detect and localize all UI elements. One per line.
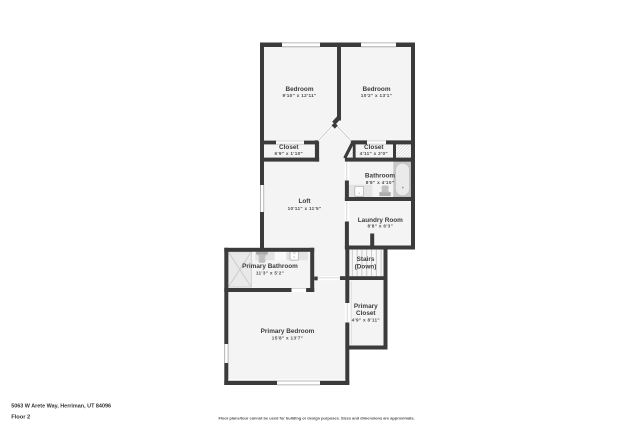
svg-text:Bathroom: Bathroom (365, 173, 395, 180)
svg-text:15'8" x 13'7": 15'8" x 13'7" (272, 335, 303, 340)
svg-text:10'11" x 11'5": 10'11" x 11'5" (288, 206, 322, 211)
svg-text:Closet: Closet (279, 144, 299, 151)
svg-text:Primary: Primary (354, 303, 378, 310)
svg-text:Primary Bedroom: Primary Bedroom (261, 328, 315, 335)
svg-text:8'8" x 4'10": 8'8" x 4'10" (366, 180, 395, 185)
svg-text:10'2" x 13'1": 10'2" x 13'1" (361, 93, 392, 98)
svg-text:(Down): (Down) (355, 263, 377, 270)
svg-text:Closet: Closet (356, 310, 376, 317)
svg-text:4'9" x 8'11": 4'9" x 8'11" (352, 317, 380, 322)
svg-text:Loft: Loft (298, 198, 311, 205)
svg-text:9'10" x 12'11": 9'10" x 12'11" (282, 93, 316, 98)
svg-text:6'9" x 1'10": 6'9" x 1'10" (275, 151, 304, 156)
svg-text:Stairs: Stairs (357, 256, 375, 263)
svg-text:Floor 2: Floor 2 (11, 414, 30, 420)
svg-text:Closet: Closet (364, 144, 384, 151)
svg-text:11'3" x 5'2": 11'3" x 5'2" (256, 270, 284, 275)
svg-text:Floor plans/tour cannot be use: Floor plans/tour cannot be used for buil… (219, 415, 415, 420)
svg-text:8'8" x 6'3": 8'8" x 6'3" (367, 224, 393, 229)
svg-text:5063 W Arete Way, Herriman, UT: 5063 W Arete Way, Herriman, UT 84096 (11, 403, 111, 409)
svg-text:4'11" x 2'0": 4'11" x 2'0" (360, 151, 388, 156)
svg-text:Primary Bathroom: Primary Bathroom (242, 263, 298, 270)
